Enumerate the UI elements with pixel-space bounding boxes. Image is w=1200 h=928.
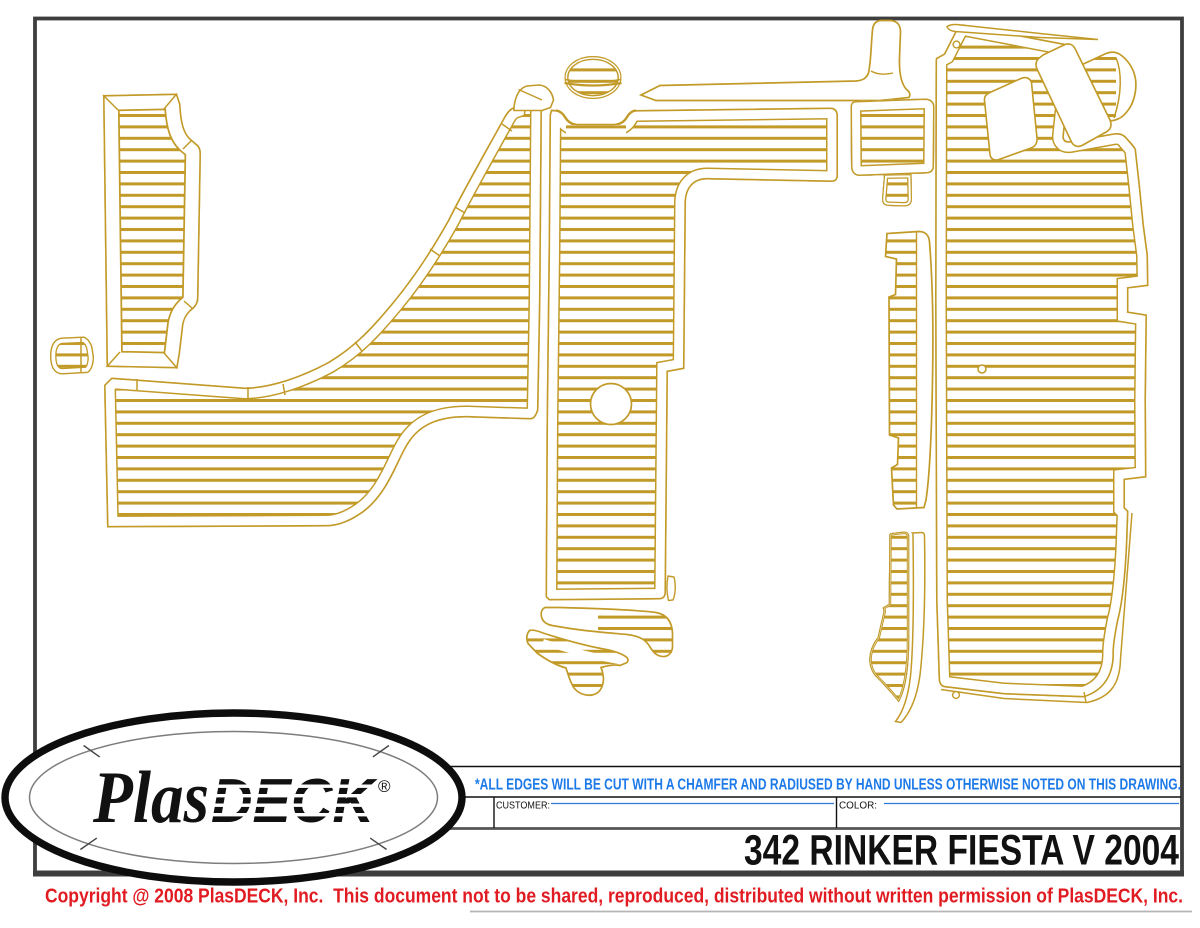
svg-text:®: ® [378,777,391,796]
svg-text:Copyright @ 2008 PlasDECK, Inc: Copyright @ 2008 PlasDECK, Inc. This doc… [45,885,1183,908]
svg-text:CUSTOMER:: CUSTOMER: [496,800,550,812]
svg-text:Plas: Plas [92,757,209,839]
svg-text:342 RINKER FIESTA V 2004: 342 RINKER FIESTA V 2004 [744,827,1179,875]
svg-text:COLOR:: COLOR: [839,800,877,812]
svg-text:*ALL EDGES WILL BE CUT WITH A: *ALL EDGES WILL BE CUT WITH A CHAMFER AN… [475,777,1181,794]
svg-text:DECK: DECK [211,767,378,836]
